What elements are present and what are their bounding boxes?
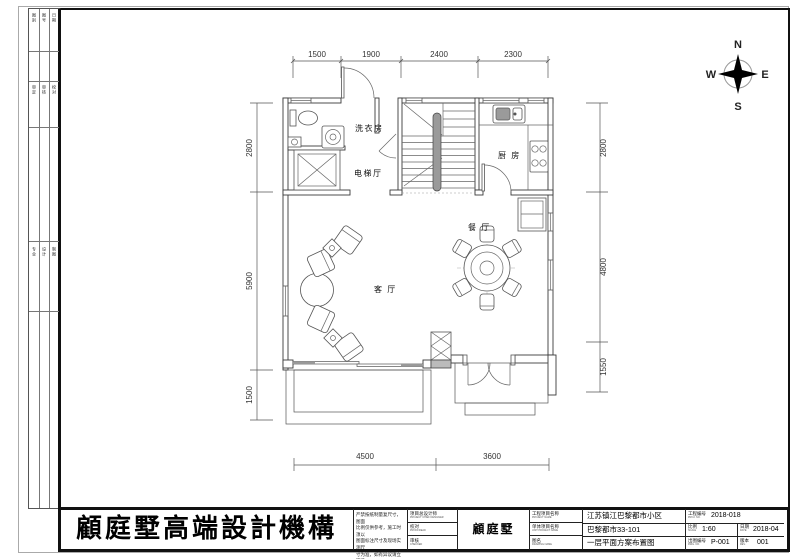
room-label-kitchen: 厨 房 xyxy=(498,150,521,160)
unit-name-value: 巴黎都市33-101 xyxy=(583,523,640,537)
strip-cell: 制图 xyxy=(49,247,59,257)
dim-right-3: 1550 xyxy=(599,358,608,376)
name-row: 工程项目名称PROJECT NAME xyxy=(530,509,582,523)
column xyxy=(431,332,451,368)
scale-label: 比例SCALE xyxy=(686,523,699,533)
strip-cell: 专业 xyxy=(29,247,39,257)
double-entry-door xyxy=(463,355,515,385)
company-name: 顧庭墅高端設計機構 xyxy=(60,509,353,550)
laundry-fixtures xyxy=(288,110,344,148)
name-row: 图名DRAWING NAME xyxy=(530,536,582,550)
dim-left-1: 2800 xyxy=(245,139,254,157)
north-compass: N S W E xyxy=(703,32,773,116)
strip-cell: 图别 xyxy=(29,13,39,23)
dim-top-4: 2300 xyxy=(504,50,522,59)
room-label-dining: 餐 厅 xyxy=(468,223,491,232)
window xyxy=(283,286,288,316)
compass-s: S xyxy=(734,101,741,113)
floor-plan: 1500 1900 2400 2300 2800 5900 1500 2800 … xyxy=(228,38,628,488)
dim-right-1: 2800 xyxy=(599,139,608,157)
sign-row: 校对PROOFREAD xyxy=(408,523,457,537)
compass-star-icon xyxy=(718,54,758,94)
stove xyxy=(530,141,548,172)
washing-machine xyxy=(322,126,344,148)
window xyxy=(406,98,422,103)
sign-row: 项目总设计师PROJECT CHIEF DESIGNER xyxy=(408,509,457,523)
dim-bottom-1: 4500 xyxy=(356,452,374,461)
window xyxy=(548,213,553,231)
toilet xyxy=(290,110,318,126)
kitchen-sink xyxy=(493,105,525,123)
window xyxy=(483,98,519,103)
dim-left-2: 5900 xyxy=(245,272,254,290)
strip-cell: 日期 xyxy=(49,13,59,23)
sliding-door xyxy=(293,362,423,367)
laundry-door xyxy=(379,134,396,158)
window xyxy=(548,260,553,290)
elevator-shaft xyxy=(294,150,340,190)
date-value: 2018-04 xyxy=(751,523,779,537)
entry-porch xyxy=(455,363,548,415)
title-block: 顧庭墅高端設計機構 严禁按纸制量复尺寸，图面 比例仅供参考，施工时须以 图面标注… xyxy=(58,507,790,552)
entry-door xyxy=(342,67,375,98)
dim-labels: 1500 1900 2400 2300 2800 5900 1500 2800 … xyxy=(245,50,608,461)
rev-label: 版本REV. xyxy=(738,536,751,546)
rev-value: 001 xyxy=(751,536,769,550)
proj-no-value: 2018-018 xyxy=(708,509,741,523)
scale-value: 1:60 xyxy=(699,523,716,537)
staircase xyxy=(402,103,475,193)
room-label-elevator: 电梯厅 xyxy=(354,168,383,178)
compass-n: N xyxy=(734,39,742,51)
dwg-no-value: P-001 xyxy=(708,536,730,550)
dim-top-3: 2400 xyxy=(430,50,448,59)
strip-cell: 图号 xyxy=(39,13,49,23)
window xyxy=(291,98,311,103)
proj-no-label: 工程编号PROJ. NO. xyxy=(686,509,708,519)
tall-cabinet xyxy=(518,198,546,231)
strip-cell: 设计 xyxy=(39,247,49,257)
drawing-sheet: 图别 图号 日期 审定 审核 校对 专业 设计 制图 N S W E xyxy=(0,0,800,559)
disclaimer-text: 严禁按纸制量复尺寸，图面 比例仅供参考，施工时须以 图面标注尺寸及现场实测尺 寸… xyxy=(354,509,407,559)
title-strip: 图别 图号 日期 审定 审核 校对 专业 设计 制图 xyxy=(28,8,61,509)
project-badge: 顧庭墅 xyxy=(458,509,529,550)
dim-bottom-2: 3600 xyxy=(483,452,501,461)
strip-cell: 审定 xyxy=(29,85,39,95)
dim-right-2: 4800 xyxy=(599,258,608,276)
kitchen-door xyxy=(482,164,511,192)
date-label: 日期DATE xyxy=(738,523,751,533)
name-row: 单体项目名称UNIT PROJECT NAME xyxy=(530,523,582,537)
living-set xyxy=(301,225,365,363)
window xyxy=(528,98,544,103)
strip-cell: 审核 xyxy=(39,85,49,95)
dim-top-2: 1900 xyxy=(362,50,380,59)
dining-set xyxy=(452,226,523,310)
compass-e: E xyxy=(761,69,768,81)
stair-rail xyxy=(433,113,441,191)
strip-cell: 校对 xyxy=(49,85,59,95)
dwg-no-label: 出图编号DWG. NO. xyxy=(686,536,708,546)
dim-left-3: 1500 xyxy=(245,386,254,404)
dining-chair xyxy=(480,294,494,310)
compass-w: W xyxy=(706,69,717,81)
drawing-name-value: 一层平面方案布置图 xyxy=(583,536,655,550)
armchair xyxy=(306,304,335,333)
room-label-laundry: 洗衣房 xyxy=(355,123,384,133)
floor-basin xyxy=(288,137,301,147)
room-label-living: 客 厅 xyxy=(374,284,397,294)
sign-row: 审核CHECKED xyxy=(408,536,457,550)
terrace xyxy=(286,370,431,424)
project-name-value: 江苏镇江巴黎都市小区 xyxy=(583,509,662,523)
dim-top-1: 1500 xyxy=(308,50,326,59)
kitchen-fixtures xyxy=(479,105,553,231)
